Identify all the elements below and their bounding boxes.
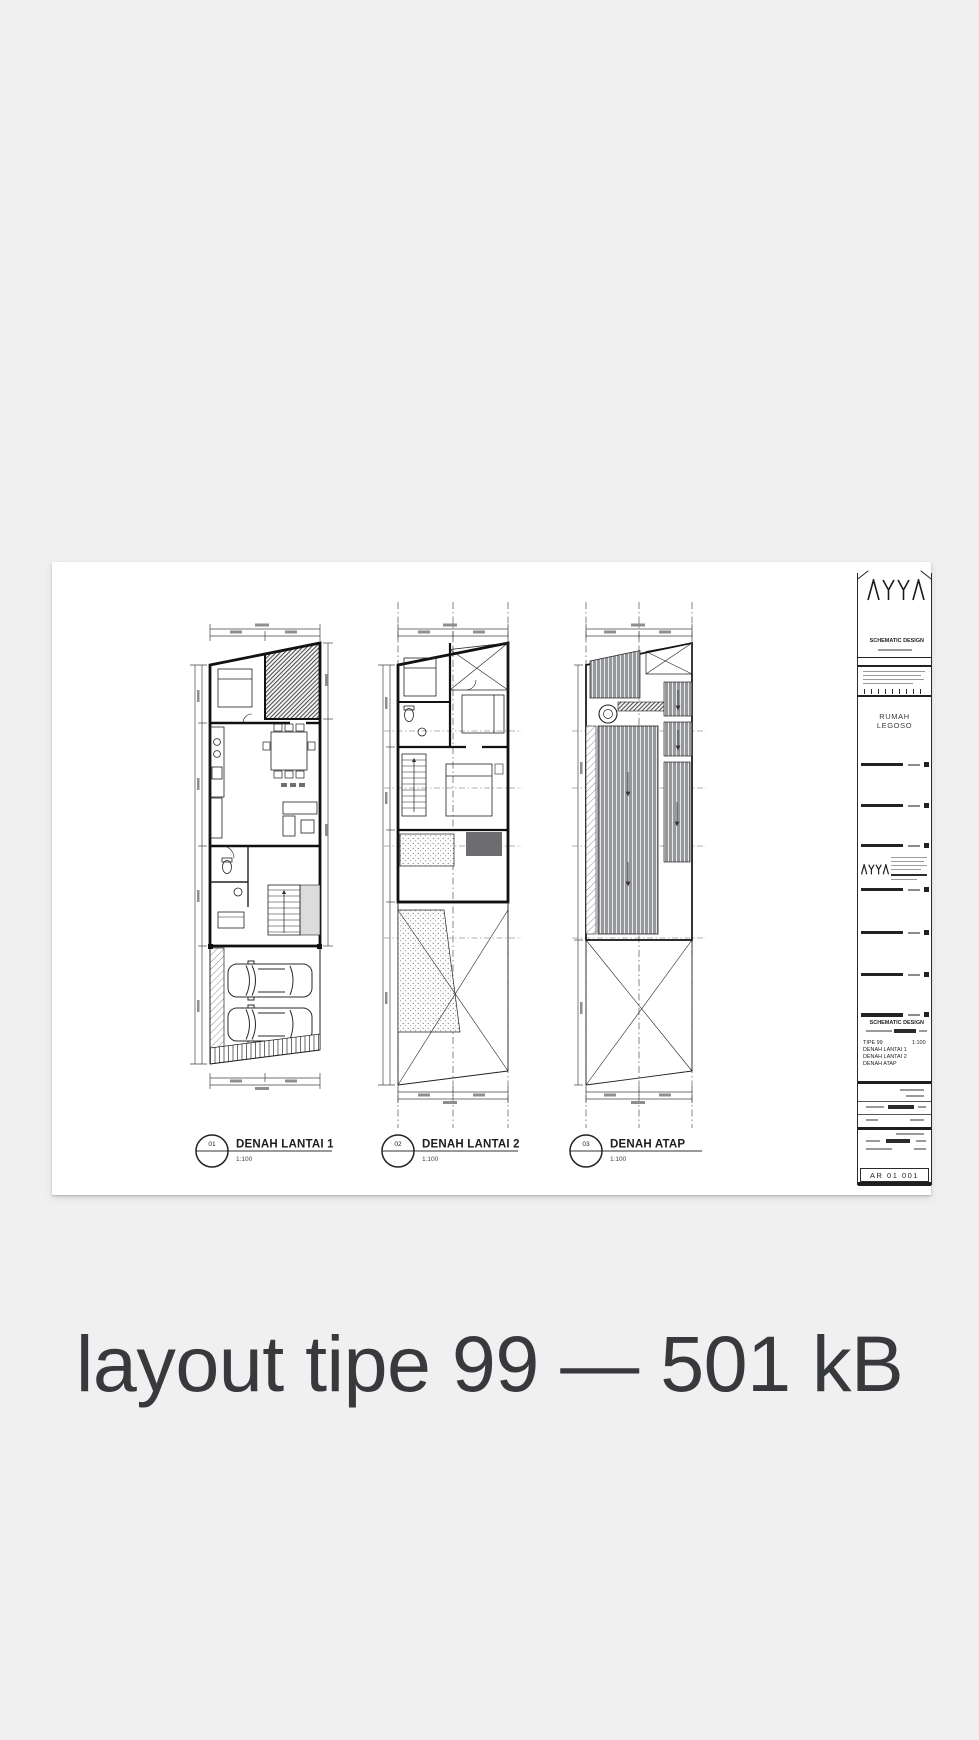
row-divider <box>858 1012 931 1018</box>
row-divider <box>858 930 931 936</box>
plan-number: 03 <box>582 1141 590 1148</box>
plan-title: DENAH LANTAI 1 <box>236 1139 334 1151</box>
logo-box: AYYA SCHEMATIC DESIGN <box>858 573 931 658</box>
sheet-number: AR 01 001 <box>860 1168 929 1182</box>
plan-label-denah-lantai-1: 01 DENAH LANTAI 1 1:100 <box>196 1135 334 1167</box>
plan-denah-lantai-2 <box>378 602 522 1128</box>
plan-scale: 1:100 <box>422 1156 439 1163</box>
floor-plans-drawing: 01 DENAH LANTAI 1 1:100 02 DENAH LANTAI … <box>52 562 931 1195</box>
row-divider <box>858 887 931 893</box>
type-label: TIPE 99 <box>863 1039 883 1045</box>
phase-label: SCHEMATIC DESIGN <box>870 637 920 643</box>
plan-denah-lantai-1 <box>190 624 333 1091</box>
row-divider <box>858 762 931 768</box>
plan-number: 02 <box>394 1141 402 1148</box>
project-name: RUMAH LEGOSO <box>858 712 931 730</box>
title-block: AYYA SCHEMATIC DESIGN RUMAH LEGOSO <box>857 573 932 1185</box>
sheet-list-item: DENAH LANTAI 2 <box>863 1053 907 1059</box>
plan-label-denah-atap: 03 DENAH ATAP 1:100 <box>570 1135 702 1167</box>
sheet-list-item: DENAH ATAP <box>863 1060 897 1066</box>
plan-label-denah-lantai-2: 02 DENAH LANTAI 2 1:100 <box>382 1135 520 1167</box>
title-block-bottom-bar <box>858 1182 931 1186</box>
row-divider <box>858 972 931 978</box>
drawing-info-block: SCHEMATIC DESIGN TIPE 99 1:100 DENAH LAN… <box>858 1019 931 1179</box>
phase-subtext-bar <box>878 649 912 651</box>
scale-value: 1:100 <box>912 1039 926 1045</box>
firm-block: AYYA <box>858 855 931 885</box>
sheet-list-item: DENAH LANTAI 1 <box>863 1046 907 1052</box>
ayya-firm-logo <box>861 864 889 875</box>
plan-scale: 1:100 <box>610 1156 627 1163</box>
info-heading: SCHEMATIC DESIGN <box>870 1019 920 1025</box>
notes-box <box>858 665 931 697</box>
plan-scale: 1:100 <box>236 1156 253 1163</box>
plan-title: DENAH ATAP <box>610 1139 685 1151</box>
viewer-background: 01 DENAH LANTAI 1 1:100 02 DENAH LANTAI … <box>0 0 979 1740</box>
plan-denah-atap <box>572 602 706 1128</box>
ayya-logo <box>867 579 925 601</box>
row-divider <box>858 803 931 809</box>
drawing-sheet-image[interactable]: 01 DENAH LANTAI 1 1:100 02 DENAH LANTAI … <box>52 562 931 1195</box>
row-divider <box>858 843 931 849</box>
file-caption: layout tipe 99 — 501 kB <box>0 1318 979 1410</box>
plan-number: 01 <box>208 1141 216 1148</box>
plan-title: DENAH LANTAI 2 <box>422 1139 520 1151</box>
